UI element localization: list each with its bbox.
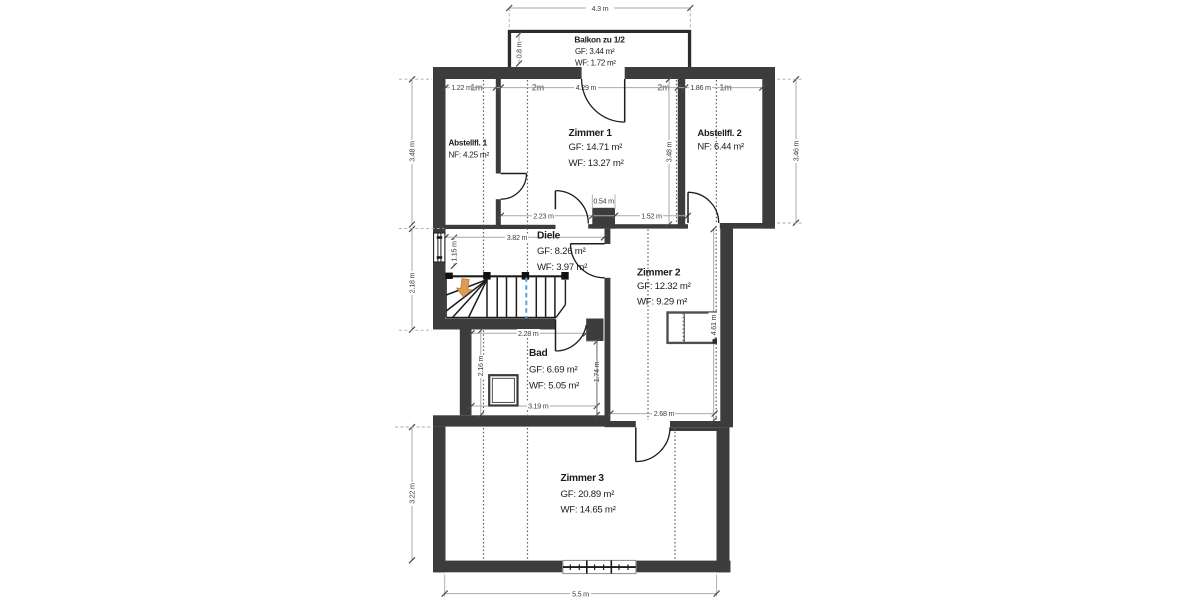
svg-text:Diele: Diele bbox=[537, 231, 561, 242]
svg-text:Zimmer 2: Zimmer 2 bbox=[637, 268, 681, 279]
svg-text:2.68 m: 2.68 m bbox=[654, 409, 675, 418]
svg-text:3.22 m: 3.22 m bbox=[408, 483, 417, 504]
svg-text:4.29 m: 4.29 m bbox=[576, 83, 597, 92]
svg-text:2m: 2m bbox=[532, 82, 545, 92]
svg-text:Bad: Bad bbox=[529, 348, 548, 359]
svg-text:0.8 m: 0.8 m bbox=[515, 41, 524, 58]
svg-text:WF: 9.29 m²: WF: 9.29 m² bbox=[637, 297, 688, 308]
svg-text:GF: 14.71 m²: GF: 14.71 m² bbox=[569, 142, 624, 153]
svg-text:1m: 1m bbox=[470, 82, 483, 92]
svg-text:1m: 1m bbox=[719, 82, 732, 92]
svg-text:WF: 1.72 m²: WF: 1.72 m² bbox=[575, 59, 616, 68]
svg-text:4.61 m: 4.61 m bbox=[709, 315, 718, 336]
svg-text:5.5 m: 5.5 m bbox=[572, 589, 589, 598]
svg-text:GF: 6.69 m²: GF: 6.69 m² bbox=[529, 365, 578, 376]
svg-text:0.54 m: 0.54 m bbox=[593, 196, 614, 205]
svg-text:GF: 20.89 m²: GF: 20.89 m² bbox=[561, 489, 616, 500]
svg-text:3.19 m: 3.19 m bbox=[528, 402, 549, 411]
svg-text:1.86 m: 1.86 m bbox=[690, 83, 711, 92]
svg-text:3.82 m: 3.82 m bbox=[507, 233, 528, 242]
svg-text:Balkon zu 1/2: Balkon zu 1/2 bbox=[574, 35, 625, 45]
svg-text:WF: 3.97 m²: WF: 3.97 m² bbox=[537, 262, 588, 273]
svg-text:WF: 5.05 m²: WF: 5.05 m² bbox=[529, 381, 580, 392]
svg-text:Zimmer 1: Zimmer 1 bbox=[569, 128, 613, 139]
svg-text:2.18 m: 2.18 m bbox=[408, 273, 417, 294]
svg-text:2.23 m: 2.23 m bbox=[533, 212, 554, 221]
svg-text:3.48 m: 3.48 m bbox=[408, 141, 417, 162]
svg-text:GF: 3.44 m²: GF: 3.44 m² bbox=[575, 47, 615, 56]
svg-text:GF: 12.32 m²: GF: 12.32 m² bbox=[637, 281, 692, 292]
svg-text:2.28 m: 2.28 m bbox=[518, 329, 539, 338]
svg-text:2.16 m: 2.16 m bbox=[476, 356, 485, 377]
svg-text:GF: 8.26 m²: GF: 8.26 m² bbox=[537, 246, 586, 257]
svg-text:1.15 m: 1.15 m bbox=[450, 241, 459, 262]
svg-text:WF: 13.27 m²: WF: 13.27 m² bbox=[569, 158, 625, 169]
svg-text:1.22 m: 1.22 m bbox=[451, 83, 472, 92]
svg-text:Zimmer 3: Zimmer 3 bbox=[561, 473, 605, 484]
svg-text:3.48 m: 3.48 m bbox=[665, 142, 674, 163]
svg-text:WF: 14.65 m²: WF: 14.65 m² bbox=[561, 504, 617, 515]
svg-text:4.3 m: 4.3 m bbox=[592, 4, 609, 13]
svg-text:Abstellfl. 1: Abstellfl. 1 bbox=[449, 139, 488, 148]
svg-text:NF: 6.44 m²: NF: 6.44 m² bbox=[698, 142, 744, 152]
svg-text:2m: 2m bbox=[657, 82, 670, 92]
svg-text:3.46 m: 3.46 m bbox=[792, 141, 801, 162]
svg-text:Abstellfl. 2: Abstellfl. 2 bbox=[698, 128, 742, 138]
svg-text:1.52 m: 1.52 m bbox=[641, 212, 662, 221]
svg-text:NF: 4.25 m²: NF: 4.25 m² bbox=[449, 151, 490, 160]
